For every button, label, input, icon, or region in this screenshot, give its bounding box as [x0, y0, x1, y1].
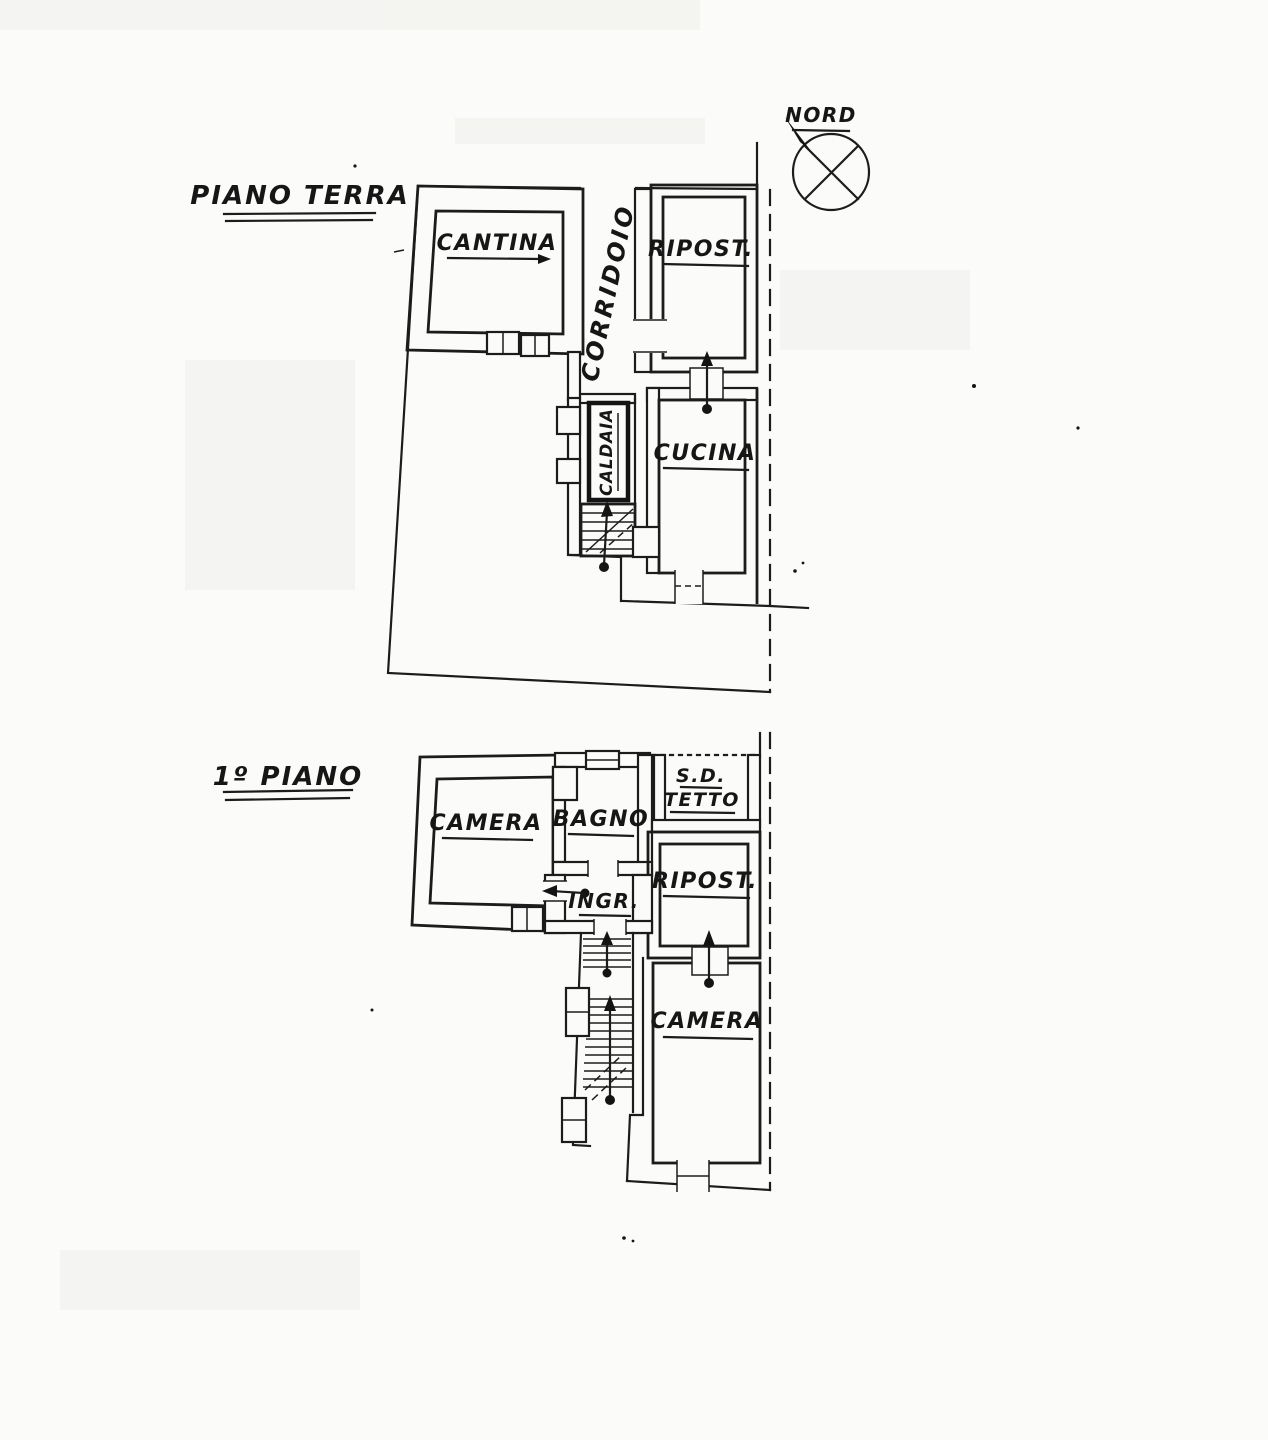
stair-up-arrow: [599, 501, 613, 572]
label-ripostiglio-ground: RIPOST.: [648, 237, 754, 262]
cantina-window: [521, 335, 549, 356]
label-corridoio: CORRIDOIO: [576, 202, 641, 384]
label-caldaia-group: CALDAIA: [597, 408, 618, 496]
label-caldaia: CALDAIA: [597, 408, 616, 496]
label-ripostiglio-first-group: RIPOST.: [652, 869, 758, 898]
first-floor-stairs: [562, 931, 633, 1146]
sottotetto-east-wall: [748, 755, 760, 827]
label-camera-sud: CAMERA: [650, 1009, 763, 1034]
bagno-north-window: [586, 751, 619, 769]
label-sottotetto-group: S.D. TETTO: [664, 765, 740, 813]
room-cantina: [407, 186, 583, 356]
label-camera-sud-group: CAMERA: [650, 1009, 763, 1039]
label-ripostiglio-ground-group: RIPOST.: [648, 237, 754, 266]
stair-west-window: [562, 1098, 586, 1142]
stair-west-window: [566, 988, 589, 1036]
speckles: [353, 164, 1079, 1242]
floor-plan-drawing: CORRIDOIO CALDAIA CANTINA RIPOST. CUCINA…: [0, 0, 1268, 1440]
door-cucina-ripostiglio: [690, 351, 723, 414]
first-floor-title: 1º PIANO: [213, 762, 364, 792]
label-cantina-group: CANTINA: [437, 231, 558, 264]
stair-landing: [633, 527, 659, 557]
room-camera-sud: [627, 930, 770, 1192]
north-compass: NORD: [785, 103, 869, 210]
door-ingresso-stairs: [594, 919, 626, 935]
label-ripostiglio-first: RIPOST.: [652, 869, 758, 894]
label-cantina: CANTINA: [437, 231, 558, 256]
door-ripostiglio-camera-sud: [692, 930, 728, 988]
ground-floor-title-group: PIANO TERRA: [190, 181, 409, 221]
label-camera-nord-group: CAMERA: [429, 811, 542, 840]
ground-stairs: [570, 501, 659, 601]
camera-sud-west-wall: [627, 958, 643, 1181]
caldaia-west-window: [557, 407, 580, 434]
label-camera-nord: CAMERA: [429, 811, 542, 836]
label-sottotetto-line2: TETTO: [664, 789, 740, 811]
label-ingresso-group: INGR.: [568, 889, 639, 916]
label-cucina: CUCINA: [654, 441, 757, 466]
compass-label: NORD: [785, 103, 857, 127]
room-camera-nord: [412, 755, 561, 931]
door-corridoio-ripostiglio: [633, 319, 667, 353]
stair-arrow-main: [604, 995, 616, 1105]
south-plinth-line: [623, 601, 808, 608]
scan-artifacts: [0, 0, 970, 1310]
label-bagno: BAGNO: [553, 807, 649, 832]
camera-nord-window: [512, 907, 543, 931]
label-bagno-group: BAGNO: [553, 807, 649, 836]
first-floor-title-group: 1º PIANO: [213, 762, 364, 800]
cantina-window: [487, 332, 519, 354]
label-cucina-group: CUCINA: [654, 441, 757, 470]
ground-floor-title: PIANO TERRA: [190, 181, 409, 211]
camera-sud-window: [677, 1160, 709, 1192]
cucina-south-window: [675, 570, 703, 604]
stair-arrow-upper: [601, 931, 613, 978]
bagno-notch: [553, 767, 577, 800]
scanned-floor-plan-page: CORRIDOIO CALDAIA CANTINA RIPOST. CUCINA…: [0, 0, 1268, 1440]
label-ingresso: INGR.: [568, 889, 639, 913]
label-sottotetto-line1: S.D.: [676, 765, 726, 787]
door-bagno-ingresso: [588, 860, 618, 877]
caldaia-west-window: [557, 459, 580, 483]
sottotetto-south-wall: [652, 820, 760, 832]
first-floor-plan: CAMERA BAGNO S.D. TETTO INGR. RIPOST. CA…: [213, 733, 770, 1192]
